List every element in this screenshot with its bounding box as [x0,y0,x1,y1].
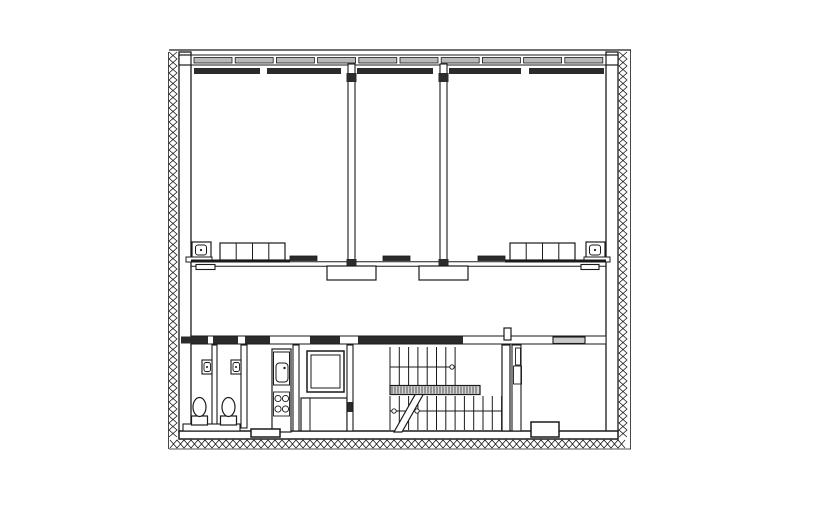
left-room-washbasin-drain [200,249,202,251]
toilet-1-bowl [193,398,206,417]
right-room-washbasin-drain [594,249,596,251]
right-room-radiator [531,422,559,437]
window-glazing-bar [482,58,520,64]
stairwell-right-wall [502,345,510,431]
sliding-door-leaf [383,256,410,261]
stairwell-door-mark [348,402,353,412]
corridor-bottom-wall-dark-segment [358,337,463,344]
partition-wall-1-cap [347,73,357,82]
wc-stall-2-right-wall [241,345,247,428]
corridor-top-wall-thick-right [505,260,606,263]
toilet-2-tank [221,416,237,425]
corridor-niche-left [327,266,376,280]
interior-sill-segment [194,68,260,74]
sliding-door-leaf [478,256,505,261]
window-glazing-bar [400,58,438,64]
interior-sill-segment [357,68,433,74]
left-wall-insulation-hatch [169,52,177,437]
wc-stall-divider-wall [212,345,217,428]
right-exterior-wall [606,52,618,432]
partition-2-wall-junction [439,259,449,267]
kitchen-right-wall [293,345,299,431]
window-glazing-bar [441,58,479,64]
window-glazing-bar [565,58,603,64]
bottom-wall-insulation-hatch [170,440,625,448]
left-exterior-wall [179,52,191,432]
right-wall-insulation-hatch [619,52,627,437]
window-glazing-bar [235,58,273,64]
window-glazing-bar [524,58,562,64]
toilet-2-bowl [222,398,235,417]
shaft-outer [307,351,344,392]
sliding-door-leaf [290,256,317,261]
partition-wall-2-cap [439,73,449,82]
stair-marker [450,365,454,369]
partition-wall-1 [348,64,355,262]
corridor-top-wall-thick-left [191,260,290,263]
corridor-bottom-wall-dark-segment [245,337,270,344]
window-band-left-cap [179,55,191,65]
window-glazing-bar [276,58,314,64]
corridor-wall-stub [504,328,511,340]
wc-sink-1-drain [206,366,208,368]
stair-marker [392,409,396,413]
wc-sink-2-drain [235,366,237,368]
toilet-1-tank [192,416,208,425]
right-room-left-wall [512,345,521,431]
partition-wall-2 [440,64,447,262]
window-glazing-bar [194,58,232,64]
window-glazing-bar [318,58,356,64]
interior-sill-segment [267,68,341,74]
stair-marker [415,409,419,413]
window-glazing-bar [359,58,397,64]
corridor-bottom-wall-dark-segment [213,337,238,344]
store-room-unit [301,398,347,431]
corridor-radiator-right [581,265,599,270]
interior-sill-segment [529,68,604,74]
floorplan-canvas [0,0,818,509]
kitchen-floor-vent [251,429,280,437]
floorplan-page [0,0,818,509]
right-room-door-mat [553,337,585,344]
stairwell-left-wall [347,345,353,431]
stair-handrail [390,386,480,395]
window-band-right-cap [606,55,618,65]
corridor-radiator-left [196,265,215,270]
kitchen-sink-drain [283,367,285,369]
partition-1-wall-junction [347,259,357,267]
interior-sill-segment [449,68,521,74]
corridor-niche-right [419,266,468,280]
stair-upper-flight-treads [390,347,455,385]
corridor-bottom-wall-dark-segment [310,337,340,344]
corridor-bottom-wall-dark-segment [181,337,208,344]
